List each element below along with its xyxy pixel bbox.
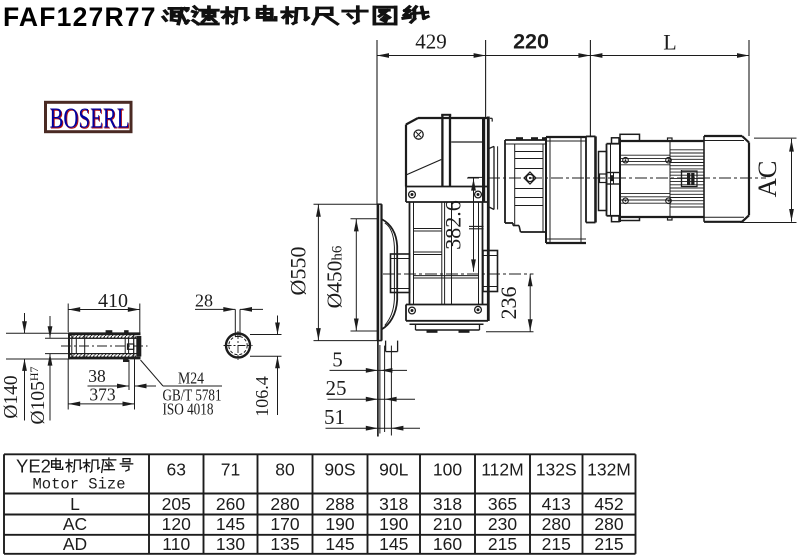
svg-text:63: 63 [167, 460, 186, 480]
svg-text:100: 100 [433, 460, 462, 480]
svg-text:L: L [663, 30, 676, 55]
svg-text:215: 215 [488, 534, 517, 554]
svg-text:205: 205 [162, 494, 191, 514]
svg-text:382.6: 382.6 [441, 200, 466, 250]
svg-text:51: 51 [324, 405, 345, 429]
svg-text:Ø550: Ø550 [286, 247, 311, 296]
svg-text:YE2: YE2 [16, 456, 51, 477]
svg-text:260: 260 [216, 494, 245, 514]
svg-text:132M: 132M [587, 460, 631, 480]
svg-text:145: 145 [379, 534, 408, 554]
svg-text:90S: 90S [324, 460, 355, 480]
svg-text:280: 280 [270, 494, 299, 514]
svg-text:132S: 132S [536, 460, 577, 480]
svg-text:112M: 112M [481, 460, 523, 480]
svg-text:145: 145 [325, 534, 354, 554]
svg-text:190: 190 [379, 514, 408, 534]
svg-text:215: 215 [542, 534, 571, 554]
svg-text:AD: AD [63, 534, 87, 554]
svg-text:38: 38 [88, 366, 106, 386]
svg-text:452: 452 [594, 494, 623, 514]
svg-text:AC: AC [752, 161, 782, 198]
svg-text:413: 413 [542, 494, 571, 514]
svg-text:190: 190 [325, 514, 354, 534]
svg-text:28: 28 [195, 291, 213, 311]
svg-text:135: 135 [270, 534, 299, 554]
svg-text:236: 236 [496, 287, 521, 320]
svg-text:Motor Size: Motor Size [32, 476, 125, 494]
svg-text:145: 145 [216, 514, 245, 534]
svg-text:BOSERL: BOSERL [50, 102, 130, 134]
svg-text:106.4: 106.4 [252, 376, 272, 417]
svg-text:215: 215 [594, 534, 623, 554]
svg-text:410: 410 [98, 290, 128, 312]
svg-text:130: 130 [216, 534, 245, 554]
svg-text:429: 429 [415, 30, 447, 54]
svg-text:Ø140: Ø140 [1, 375, 22, 418]
svg-text:71: 71 [221, 460, 240, 480]
svg-text:ISO 4018: ISO 4018 [163, 400, 214, 419]
svg-text:90L: 90L [379, 460, 408, 480]
svg-text:80: 80 [275, 460, 295, 480]
svg-text:318: 318 [433, 494, 462, 514]
svg-text:25: 25 [326, 376, 347, 400]
svg-text:373: 373 [89, 385, 116, 405]
svg-text:120: 120 [162, 514, 191, 534]
svg-text:220: 220 [513, 30, 549, 54]
svg-text:210: 210 [433, 514, 462, 534]
svg-text:5: 5 [332, 348, 343, 372]
svg-text:280: 280 [542, 514, 571, 534]
svg-text:L: L [70, 494, 80, 514]
svg-text:170: 170 [270, 514, 299, 534]
svg-text:110: 110 [162, 534, 190, 554]
svg-text:160: 160 [433, 534, 462, 554]
svg-text:365: 365 [488, 494, 517, 514]
svg-text:FAF127R77: FAF127R77 [3, 2, 157, 32]
svg-text:288: 288 [325, 494, 354, 514]
svg-text:AC: AC [63, 514, 87, 534]
svg-text:230: 230 [488, 514, 517, 534]
svg-text:318: 318 [379, 494, 408, 514]
svg-text:280: 280 [594, 514, 623, 534]
